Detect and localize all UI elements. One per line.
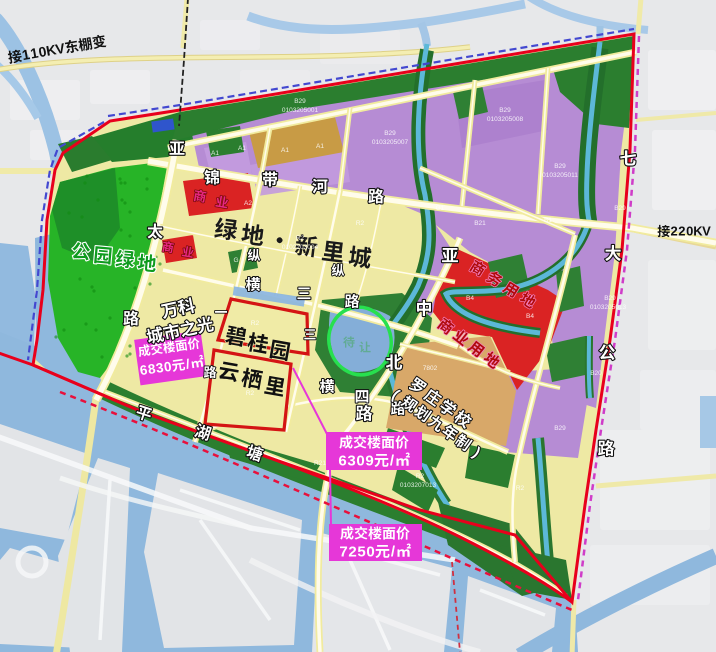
svg-text:A1: A1 [211, 150, 219, 157]
svg-text:G: G [233, 257, 238, 264]
svg-text:B4: B4 [466, 295, 474, 302]
svg-text:2: 2 [670, 224, 677, 239]
svg-text:0103205007: 0103205007 [372, 139, 409, 146]
svg-text:3: 3 [347, 452, 355, 469]
svg-text:B21: B21 [474, 220, 486, 227]
svg-text:5: 5 [357, 543, 365, 560]
svg-text:B1: B1 [544, 217, 552, 224]
svg-text:0103207013: 0103207013 [400, 482, 437, 489]
svg-text:0103205013: 0103205013 [590, 304, 627, 311]
svg-text:2: 2 [348, 543, 356, 560]
svg-text:R2: R2 [356, 220, 365, 227]
svg-text:0: 0 [356, 452, 364, 469]
svg-text:B29: B29 [614, 205, 626, 212]
svg-text:A1: A1 [238, 145, 246, 152]
svg-text:R21: R21 [314, 460, 326, 467]
svg-text:R2: R2 [296, 235, 305, 242]
svg-text:B29: B29 [604, 295, 616, 302]
svg-text:0103205001: 0103205001 [282, 107, 319, 114]
svg-text:B29: B29 [499, 107, 511, 114]
svg-text:B29: B29 [554, 163, 566, 170]
svg-text:A1: A1 [316, 143, 324, 150]
svg-text:B20: B20 [590, 370, 602, 377]
svg-text:R2: R2 [416, 473, 425, 480]
svg-text:B29: B29 [384, 130, 396, 137]
svg-text:7802: 7802 [423, 365, 438, 372]
svg-text:2: 2 [678, 224, 685, 239]
svg-text:A2: A2 [244, 200, 252, 207]
svg-text:0: 0 [366, 543, 374, 560]
svg-text:9: 9 [365, 452, 373, 469]
svg-text:R2: R2 [251, 320, 260, 327]
svg-text:0102203004: 0102203004 [282, 244, 319, 251]
svg-text:A1: A1 [281, 147, 289, 154]
svg-text:0103205011: 0103205011 [542, 172, 578, 179]
svg-text:R2: R2 [246, 390, 255, 397]
svg-text:R2: R2 [516, 485, 525, 492]
svg-text:0103205008: 0103205008 [487, 116, 524, 123]
svg-text:B29: B29 [554, 425, 566, 432]
svg-text:V: V [702, 224, 711, 239]
svg-text:B29: B29 [294, 98, 306, 105]
svg-text:B4: B4 [526, 313, 534, 320]
svg-text:G1: G1 [436, 205, 445, 212]
svg-text:6: 6 [338, 452, 346, 469]
svg-text:7: 7 [339, 543, 347, 560]
